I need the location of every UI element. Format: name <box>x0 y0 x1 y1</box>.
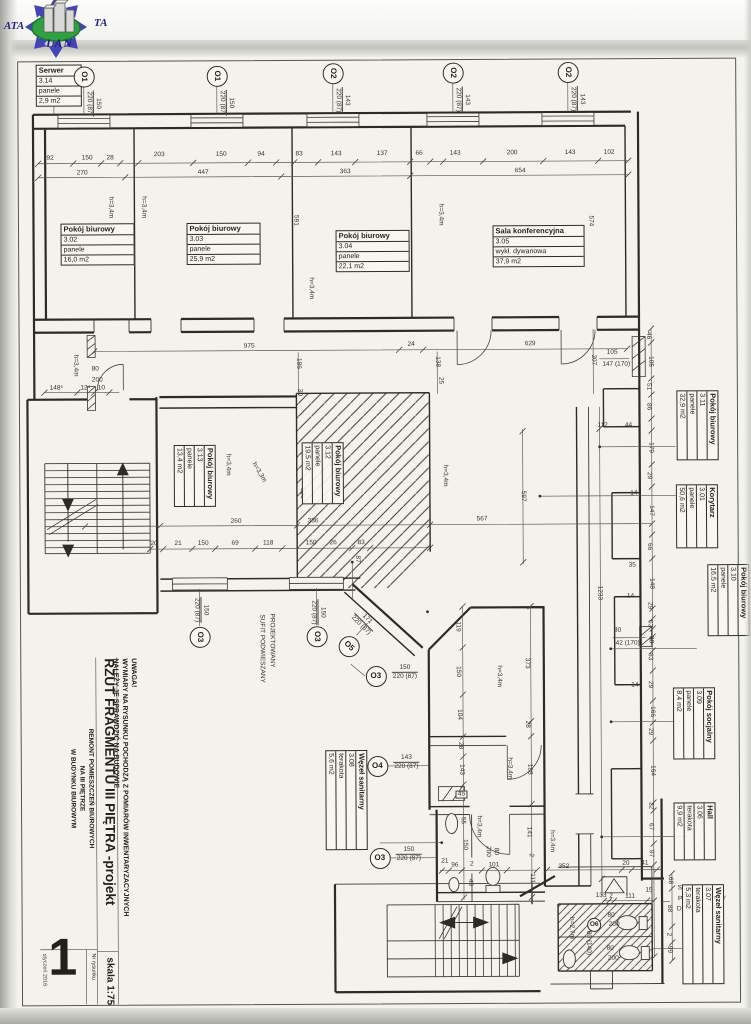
opening-size-fraction: 143 220 (87) <box>334 87 351 113</box>
opening-size-fraction: 143 220 (87) <box>393 754 419 771</box>
drawing-number: 1 <box>48 932 77 984</box>
scan-edge-left <box>0 0 18 1024</box>
note-line-2: WYMIARY NA RYSUNKU POCHODZĄ Z POMIARÓW I… <box>120 658 130 916</box>
project-line-3: W BUDYNKU BIUROWYM <box>68 689 78 889</box>
logo-text-lan: LAN <box>46 36 73 51</box>
floor-plan: 9215028270203150944478314313736366143200… <box>0 0 751 1024</box>
logo-buildings <box>44 0 74 32</box>
opening-circle: O1 <box>206 65 227 86</box>
opening-circle: O4 <box>367 755 388 776</box>
scale-label: skala 1:75 <box>104 957 115 1005</box>
opening-circle: O3 <box>306 626 327 647</box>
opening-size-fraction: 143 220 (87) <box>454 86 471 112</box>
note-line-1: UWAGA! <box>129 658 139 916</box>
drawing-title: RZUT FRAGMENTU III PIĘTRA -projekt <box>102 658 118 905</box>
scan-edge-bottom <box>0 1008 751 1024</box>
opening-circle: O5 <box>338 636 359 657</box>
project-name: REMONT POMIESZCZEŃ BIUROWYCH NA III PIĘT… <box>68 688 95 888</box>
company-logo: ATA TA LAN <box>4 0 120 58</box>
opening-circle: O3 <box>369 847 390 868</box>
opening-circle: O6 <box>587 918 601 932</box>
opening-size-fraction: 150 220 (87) <box>396 846 422 863</box>
opening-size-fraction: 150 220 (87) <box>310 599 327 625</box>
opening-circle: O3 <box>365 665 386 686</box>
opening-size-fraction: 171 220 (87) <box>349 607 379 637</box>
logo-text-left: ATA <box>4 20 24 32</box>
project-line-2: NA III PIĘTRZE <box>76 689 86 889</box>
scan-edge-right <box>744 0 751 1024</box>
logo-text-right: TA <box>94 17 107 29</box>
opening-circle: O2 <box>322 63 343 84</box>
project-line-1: REMONT POMIESZCZEŃ BIUROWYCH <box>85 688 95 888</box>
opening-size-fraction: 150 220 (87) <box>193 597 210 623</box>
opening-size-fraction: 150 220 (87) <box>85 90 102 116</box>
opening-circle: O2 <box>442 62 463 83</box>
opening-circle: O3 <box>189 626 210 647</box>
drawing-number-label: Nr rysunku <box>90 953 96 980</box>
scanned-page: ATA TA LAN <box>0 0 751 1024</box>
opening-size-fraction: 150 220 (87) <box>392 664 418 681</box>
opening-circle: O2 <box>557 61 578 82</box>
opening-size-fraction: 143 220 (87) <box>569 86 586 112</box>
drawing-date: styczeń 2016 <box>41 954 47 986</box>
opening-size-fraction: 150 220 (87) <box>218 90 235 116</box>
opening-circle: O1 <box>73 66 94 87</box>
